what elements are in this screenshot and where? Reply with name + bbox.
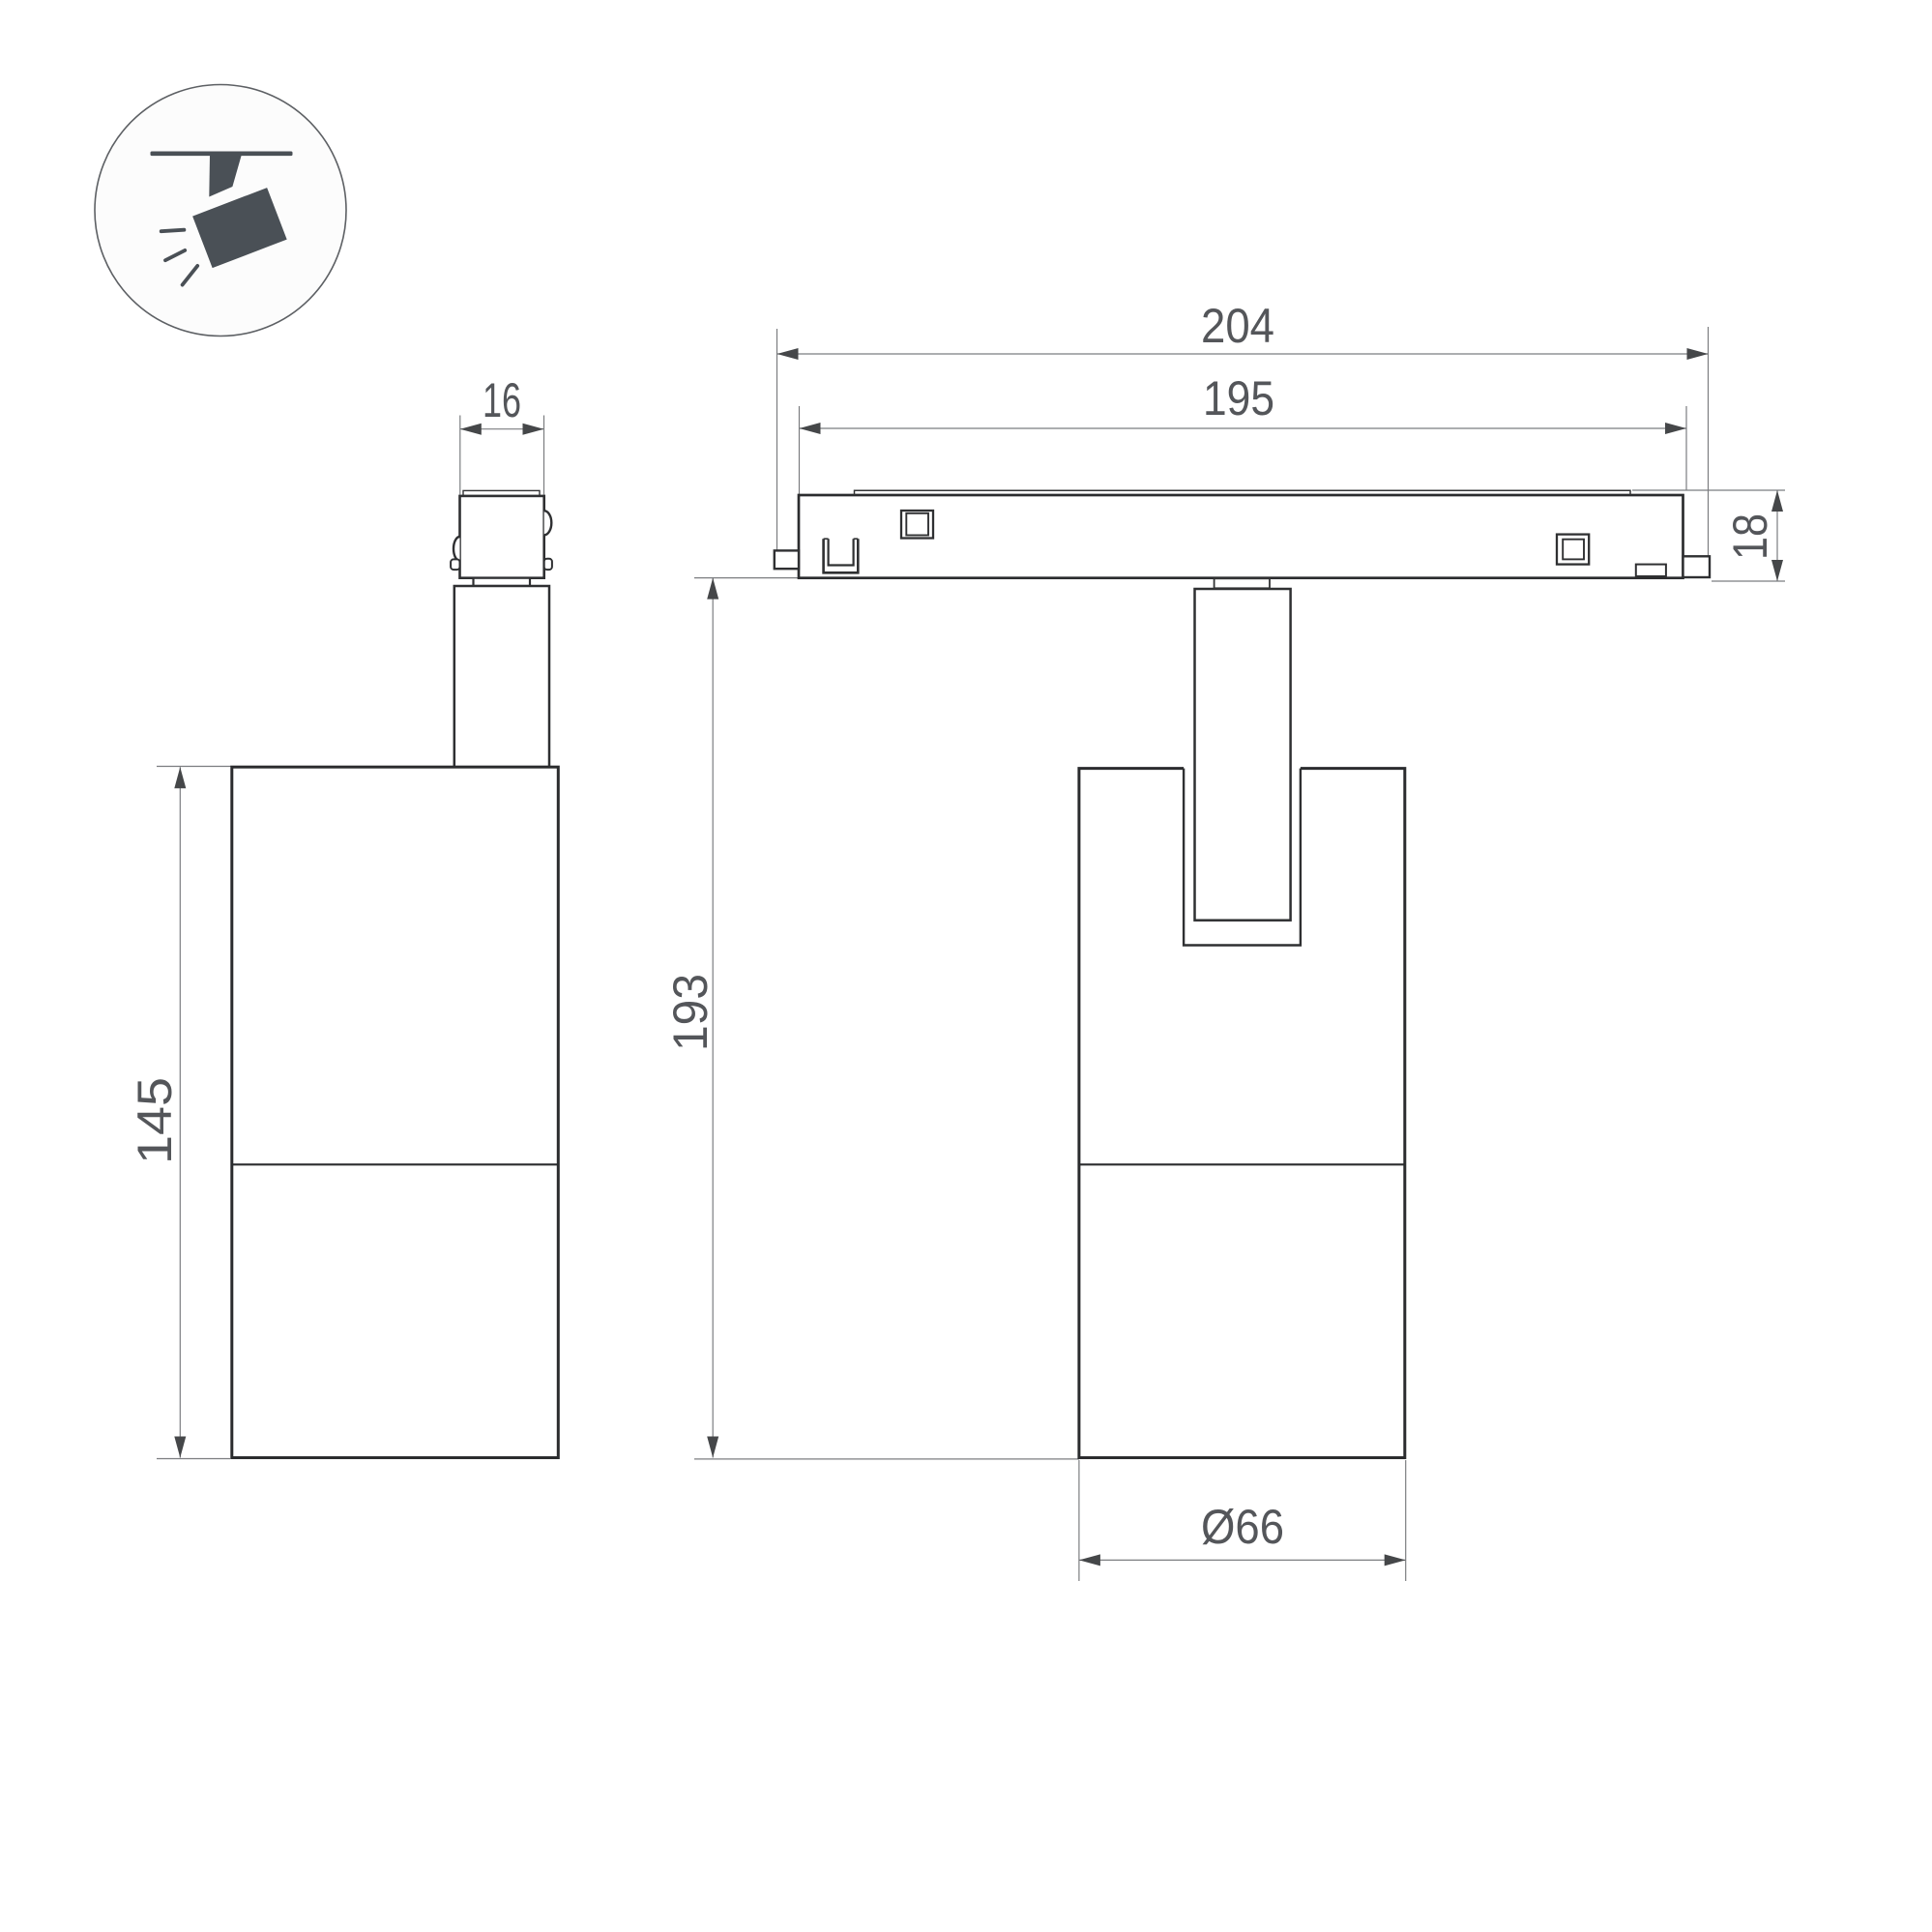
- svg-text:16: 16: [483, 373, 521, 427]
- svg-text:18: 18: [1723, 513, 1777, 560]
- svg-text:195: 195: [1203, 371, 1274, 425]
- svg-text:204: 204: [1201, 299, 1274, 353]
- svg-text:Ø66: Ø66: [1201, 1500, 1284, 1554]
- svg-text:145: 145: [128, 1077, 182, 1164]
- svg-text:193: 193: [663, 974, 717, 1051]
